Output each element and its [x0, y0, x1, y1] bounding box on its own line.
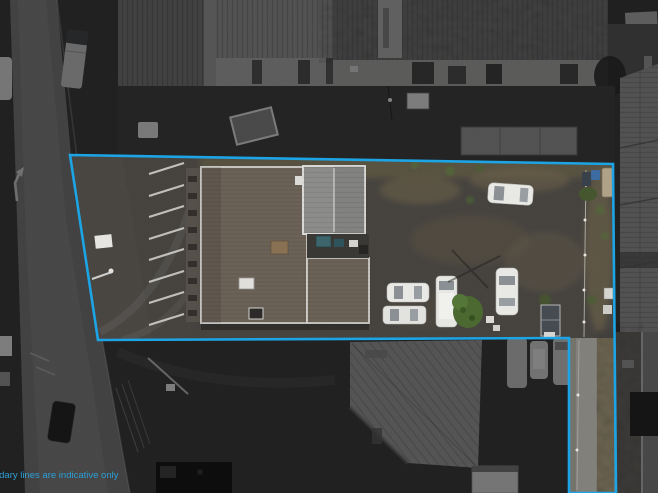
- photo-grain: [0, 0, 658, 493]
- aerial-property-photo: boundary lines are indicative only: [0, 0, 658, 493]
- boundary-disclaimer-text: boundary lines are indicative only: [0, 470, 119, 481]
